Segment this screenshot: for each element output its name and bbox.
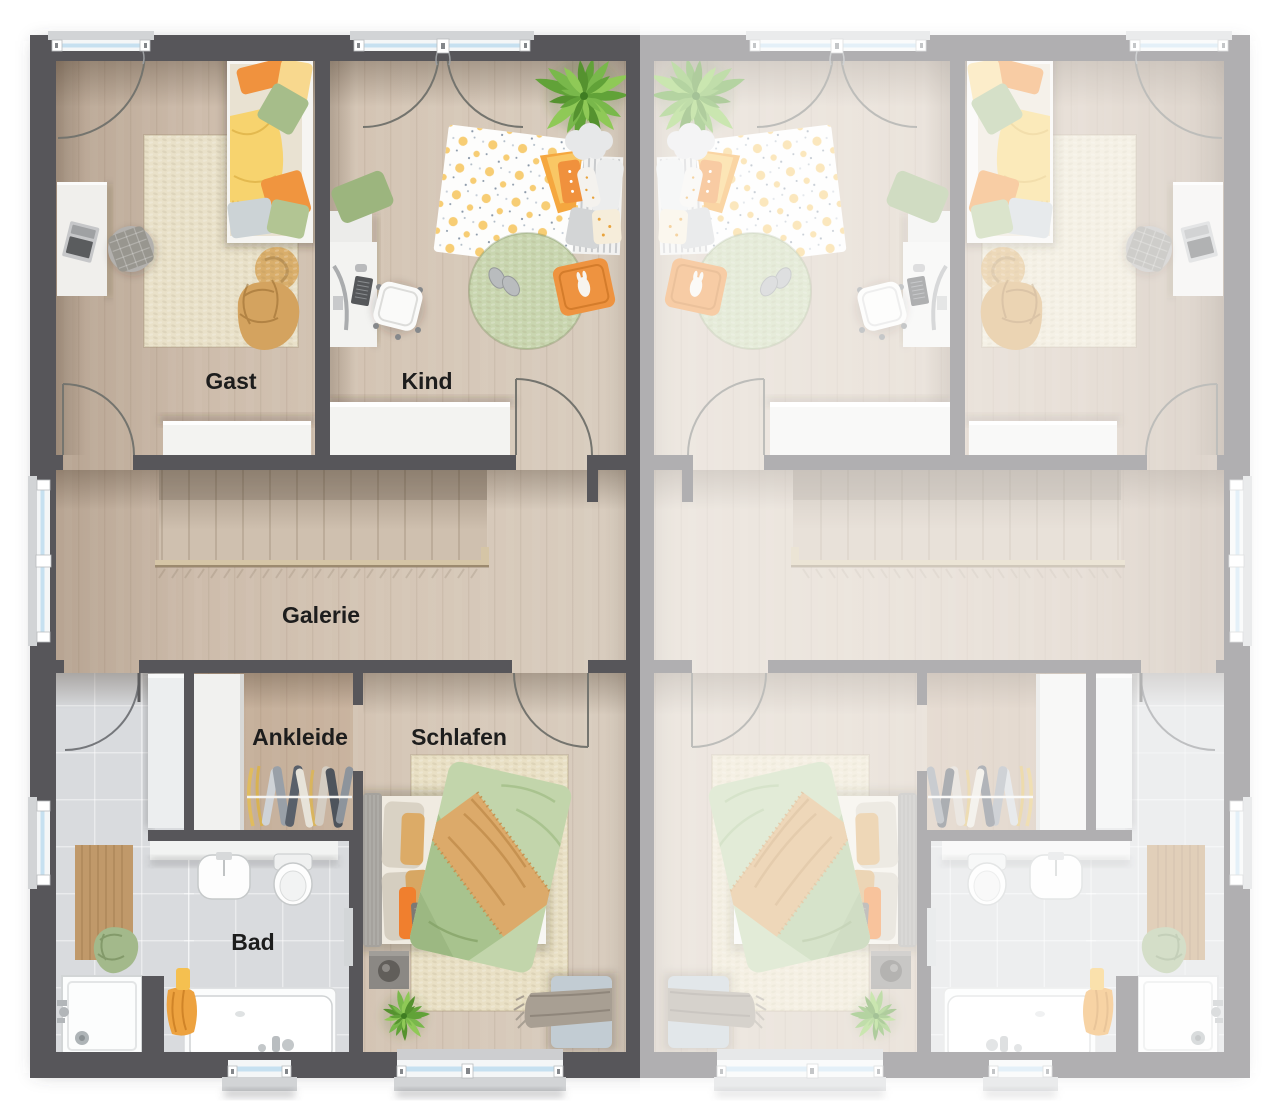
svg-text:Kind: Kind (401, 368, 452, 394)
svg-text:Ankleide: Ankleide (252, 724, 348, 750)
svg-text:Bad: Bad (231, 929, 274, 955)
svg-text:Galerie: Galerie (282, 602, 360, 628)
svg-text:Gast: Gast (205, 368, 256, 394)
svg-text:Schlafen: Schlafen (411, 724, 507, 750)
